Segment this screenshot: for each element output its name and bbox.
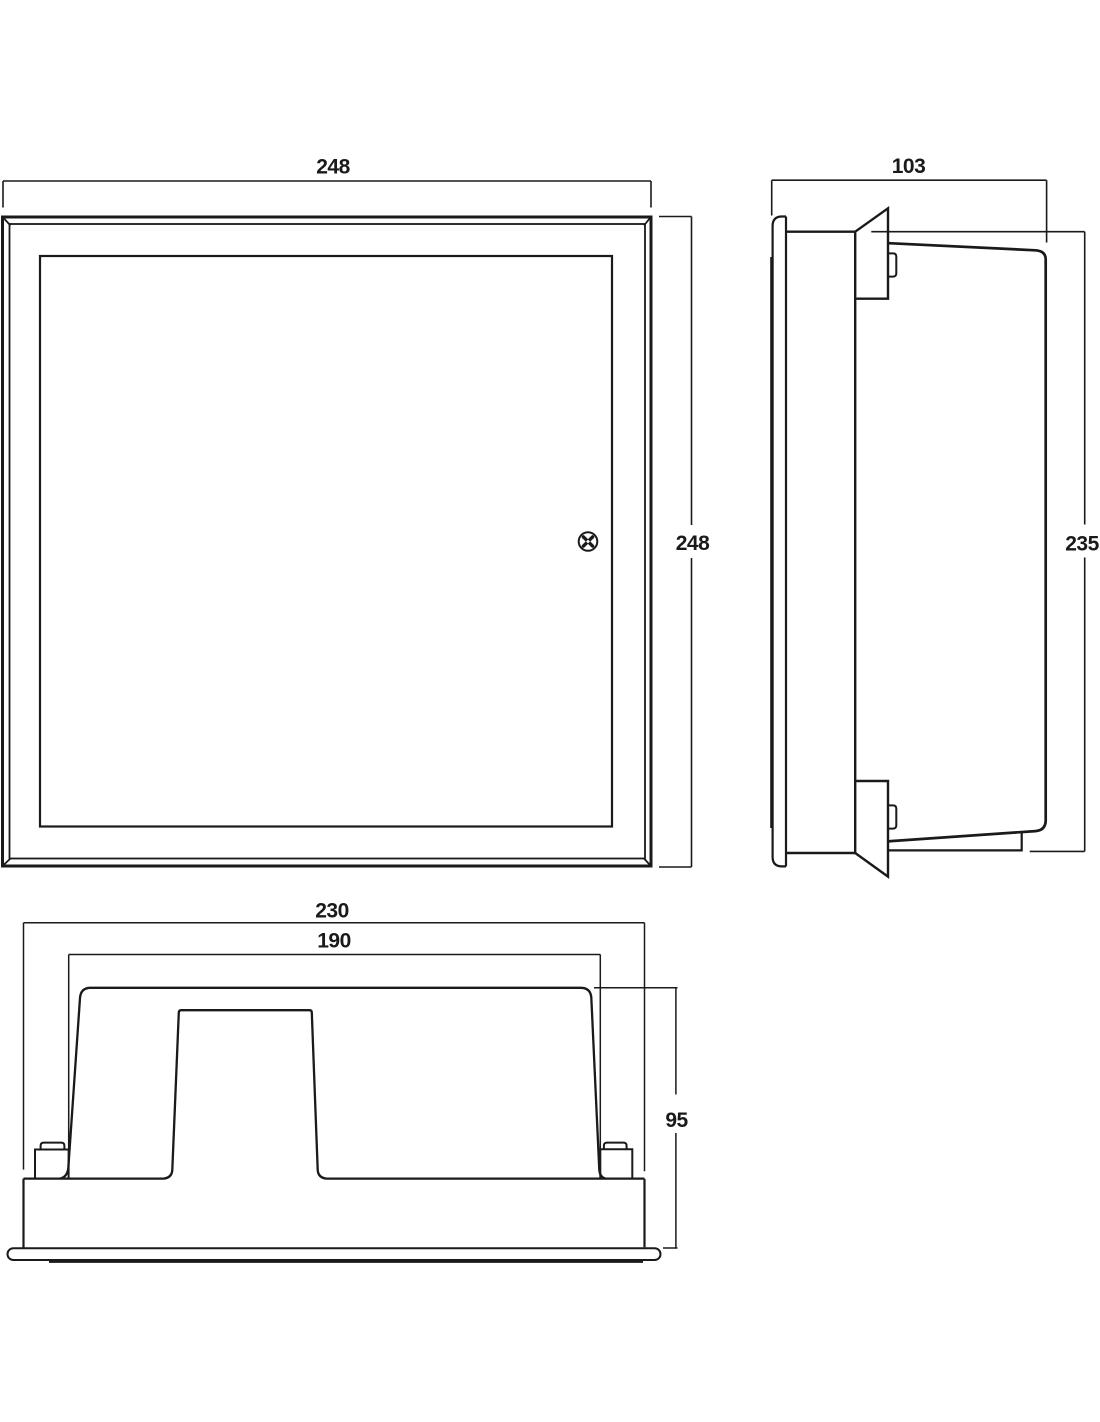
svg-text:103: 103 xyxy=(892,155,926,178)
svg-text:230: 230 xyxy=(315,900,349,923)
svg-text:248: 248 xyxy=(316,156,350,179)
svg-text:248: 248 xyxy=(676,532,710,555)
svg-text:190: 190 xyxy=(317,930,351,953)
svg-text:95: 95 xyxy=(665,1109,688,1132)
svg-text:235: 235 xyxy=(1065,533,1099,556)
